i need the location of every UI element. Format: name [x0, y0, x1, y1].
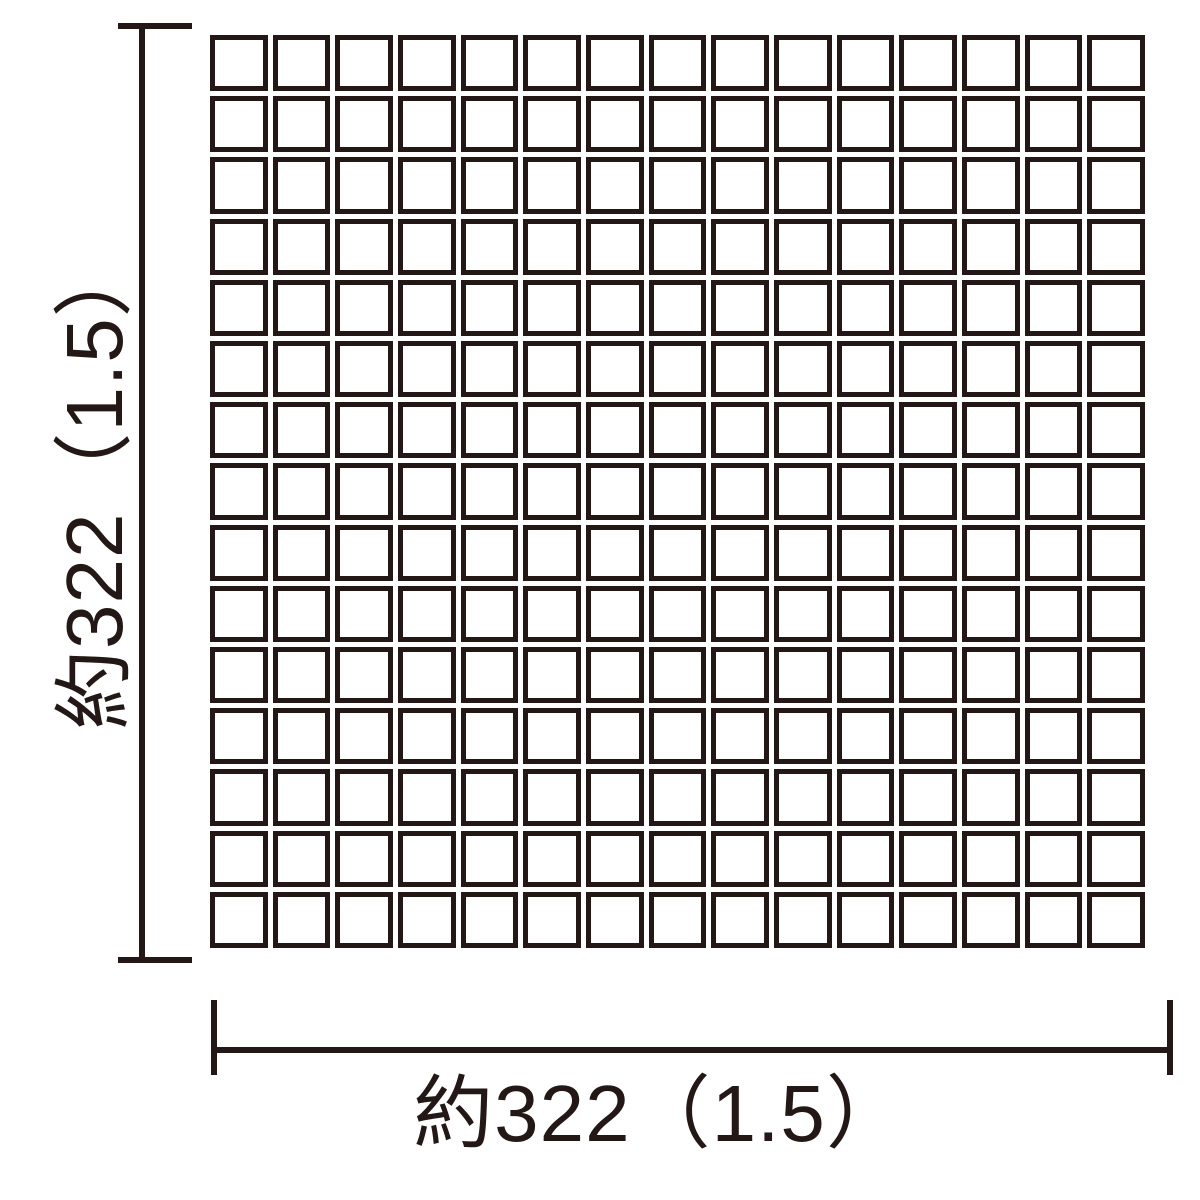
mosaic-tile [273, 708, 331, 764]
mosaic-tile [837, 35, 895, 91]
mosaic-tile [523, 892, 581, 948]
mosaic-tile [711, 463, 769, 519]
mosaic-tile [335, 402, 393, 458]
mosaic-tile [774, 341, 832, 397]
mosaic-tile [335, 831, 393, 887]
mosaic-tile [523, 341, 581, 397]
mosaic-tile [837, 341, 895, 397]
mosaic-tile [774, 35, 832, 91]
mosaic-tile [1087, 647, 1145, 703]
mosaic-tile [837, 402, 895, 458]
mosaic-tile [649, 525, 707, 581]
mosaic-tile [398, 463, 456, 519]
mosaic-tile [962, 708, 1020, 764]
mosaic-tile [461, 892, 519, 948]
mosaic-tile [711, 35, 769, 91]
mosaic-tile [210, 219, 268, 275]
mosaic-tile [649, 280, 707, 336]
mosaic-tile [398, 402, 456, 458]
mosaic-tile [899, 341, 957, 397]
mosaic-tile [398, 831, 456, 887]
mosaic-tile [586, 35, 644, 91]
mosaic-tile [1025, 341, 1083, 397]
mosaic-tile [649, 341, 707, 397]
mosaic-tile [210, 708, 268, 764]
mosaic-tile [962, 402, 1020, 458]
mosaic-tile [711, 892, 769, 948]
mosaic-tile [523, 769, 581, 825]
mosaic-tile [1025, 157, 1083, 213]
mosaic-tile [1087, 586, 1145, 642]
mosaic-tile [335, 525, 393, 581]
mosaic-tile [461, 525, 519, 581]
mosaic-tile [774, 463, 832, 519]
mosaic-tile [461, 463, 519, 519]
mosaic-tile [210, 647, 268, 703]
mosaic-tile [649, 831, 707, 887]
mosaic-tile [899, 96, 957, 152]
mosaic-tile [461, 280, 519, 336]
mosaic-tile [774, 647, 832, 703]
mosaic-tile [649, 586, 707, 642]
mosaic-tile [1025, 708, 1083, 764]
mosaic-tile [398, 341, 456, 397]
mosaic-tile [210, 586, 268, 642]
mosaic-tile [523, 96, 581, 152]
mosaic-tile [1087, 463, 1145, 519]
mosaic-tile [210, 463, 268, 519]
mosaic-tile [335, 280, 393, 336]
mosaic-tile [1087, 96, 1145, 152]
mosaic-tile [586, 280, 644, 336]
mosaic-tile [335, 647, 393, 703]
mosaic-tile [1087, 35, 1145, 91]
mosaic-tile [335, 708, 393, 764]
mosaic-tile [461, 341, 519, 397]
mosaic-tile [774, 525, 832, 581]
mosaic-tile [398, 35, 456, 91]
mosaic-tile [273, 586, 331, 642]
mosaic-tile [335, 96, 393, 152]
mosaic-tile [586, 647, 644, 703]
mosaic-tile [210, 35, 268, 91]
mosaic-tile [1025, 586, 1083, 642]
mosaic-tile [586, 586, 644, 642]
mosaic-tile [962, 463, 1020, 519]
mosaic-tile [586, 892, 644, 948]
mosaic-tile [398, 280, 456, 336]
mosaic-tile [398, 586, 456, 642]
mosaic-tile [649, 157, 707, 213]
mosaic-tile [774, 96, 832, 152]
mosaic-tile [586, 341, 644, 397]
mosaic-tile [962, 892, 1020, 948]
mosaic-tile [1025, 831, 1083, 887]
mosaic-tile [586, 525, 644, 581]
mosaic-tile [461, 96, 519, 152]
mosaic-tile [899, 769, 957, 825]
mosaic-tile [774, 280, 832, 336]
mosaic-tile [962, 35, 1020, 91]
mosaic-tile [461, 708, 519, 764]
mosaic-tile [210, 157, 268, 213]
mosaic-tile [899, 586, 957, 642]
mosaic-tile [586, 708, 644, 764]
mosaic-tile [649, 708, 707, 764]
mosaic-tile [523, 219, 581, 275]
mosaic-tile [273, 525, 331, 581]
mosaic-tile [774, 831, 832, 887]
mosaic-tile [899, 647, 957, 703]
mosaic-tile [1087, 831, 1145, 887]
mosaic-tile [523, 647, 581, 703]
mosaic-tile [523, 35, 581, 91]
mosaic-tile [649, 96, 707, 152]
mosaic-tile [649, 463, 707, 519]
mosaic-tile [335, 341, 393, 397]
width-dimension-line [214, 1047, 1170, 1053]
height-dimension-bottom-cap [118, 957, 192, 963]
mosaic-tile [461, 586, 519, 642]
mosaic-tile [899, 708, 957, 764]
mosaic-tile [273, 96, 331, 152]
mosaic-tile [774, 402, 832, 458]
mosaic-tile [1025, 892, 1083, 948]
mosaic-tile [1025, 96, 1083, 152]
mosaic-tile [899, 892, 957, 948]
mosaic-tile [398, 708, 456, 764]
mosaic-tile [1025, 402, 1083, 458]
mosaic-tile [398, 647, 456, 703]
mosaic-tile [273, 341, 331, 397]
mosaic-tile [837, 219, 895, 275]
mosaic-tile [1025, 35, 1083, 91]
mosaic-tile [1025, 280, 1083, 336]
mosaic-tile [1087, 892, 1145, 948]
mosaic-tile [273, 35, 331, 91]
mosaic-tile [210, 96, 268, 152]
mosaic-tile [711, 831, 769, 887]
mosaic-tile [586, 219, 644, 275]
mosaic-tile [523, 463, 581, 519]
mosaic-tile [1087, 525, 1145, 581]
height-dimension-label: 約322（1.5） [49, 310, 141, 730]
mosaic-tile [273, 769, 331, 825]
mosaic-tile [837, 892, 895, 948]
mosaic-tile [398, 769, 456, 825]
mosaic-tile [461, 647, 519, 703]
mosaic-tile [837, 525, 895, 581]
mosaic-tile [586, 463, 644, 519]
mosaic-tile [962, 525, 1020, 581]
mosaic-tile [711, 219, 769, 275]
mosaic-tile [837, 831, 895, 887]
mosaic-tile [586, 831, 644, 887]
mosaic-tile [899, 35, 957, 91]
mosaic-tile [335, 892, 393, 948]
width-dimension-left-tick [211, 1000, 217, 1075]
mosaic-tile [774, 892, 832, 948]
mosaic-tile [962, 586, 1020, 642]
mosaic-tile [273, 219, 331, 275]
mosaic-tile [837, 708, 895, 764]
mosaic-tile [649, 769, 707, 825]
mosaic-tile [899, 402, 957, 458]
mosaic-tile [335, 157, 393, 213]
mosaic-tile [899, 219, 957, 275]
mosaic-tile [335, 463, 393, 519]
mosaic-tile [837, 647, 895, 703]
mosaic-tile [523, 525, 581, 581]
mosaic-tile [899, 280, 957, 336]
mosaic-tile [837, 96, 895, 152]
mosaic-tile [711, 708, 769, 764]
mosaic-tile [1087, 402, 1145, 458]
mosaic-tile [335, 35, 393, 91]
mosaic-tile [335, 219, 393, 275]
mosaic-tile [398, 219, 456, 275]
mosaic-tile [1025, 463, 1083, 519]
height-dimension-top-cap [118, 23, 192, 29]
mosaic-tile [210, 769, 268, 825]
mosaic-tile [899, 831, 957, 887]
mosaic-tile [962, 219, 1020, 275]
mosaic-tile [899, 525, 957, 581]
mosaic-tile [586, 157, 644, 213]
mosaic-tile [273, 647, 331, 703]
mosaic-tile [774, 586, 832, 642]
mosaic-tile [273, 463, 331, 519]
mosaic-tile [649, 219, 707, 275]
mosaic-tile [586, 96, 644, 152]
mosaic-tile [210, 280, 268, 336]
mosaic-tile [398, 525, 456, 581]
mosaic-tile [1087, 341, 1145, 397]
mosaic-tile [711, 647, 769, 703]
mosaic-tile [711, 157, 769, 213]
mosaic-tile [649, 892, 707, 948]
mosaic-tile [273, 280, 331, 336]
mosaic-tile [711, 341, 769, 397]
mosaic-tile [461, 831, 519, 887]
mosaic-tile [523, 280, 581, 336]
mosaic-tile [210, 525, 268, 581]
mosaic-tile [774, 708, 832, 764]
mosaic-tile [1087, 219, 1145, 275]
mosaic-tile [649, 35, 707, 91]
mosaic-tile [837, 463, 895, 519]
mosaic-tile [210, 341, 268, 397]
mosaic-tile [210, 892, 268, 948]
mosaic-tile [586, 769, 644, 825]
mosaic-tile [1087, 769, 1145, 825]
mosaic-tile [335, 769, 393, 825]
mosaic-tile [461, 769, 519, 825]
mosaic-tile [711, 586, 769, 642]
mosaic-tile [962, 647, 1020, 703]
mosaic-tile [523, 402, 581, 458]
mosaic-tile [899, 463, 957, 519]
mosaic-tile [711, 525, 769, 581]
mosaic-tile [1025, 769, 1083, 825]
mosaic-tile [837, 280, 895, 336]
mosaic-tile [837, 586, 895, 642]
mosaic-tile [523, 157, 581, 213]
mosaic-tile [1025, 647, 1083, 703]
mosaic-tile [461, 157, 519, 213]
mosaic-tile [899, 157, 957, 213]
mosaic-tile [398, 892, 456, 948]
mosaic-tile [837, 769, 895, 825]
mosaic-tile [273, 157, 331, 213]
mosaic-tile [523, 831, 581, 887]
mosaic-tile [523, 708, 581, 764]
mosaic-tile [335, 586, 393, 642]
mosaic-tile [962, 341, 1020, 397]
mosaic-tile [837, 157, 895, 213]
mosaic-tile [210, 402, 268, 458]
mosaic-tile [461, 402, 519, 458]
mosaic-tile [1087, 280, 1145, 336]
mosaic-grid [210, 35, 1145, 948]
mosaic-tile [1087, 708, 1145, 764]
mosaic-tile [711, 769, 769, 825]
diagram-canvas: 約322（1.5） 約322（1.5） [0, 0, 1200, 1200]
mosaic-tile [711, 280, 769, 336]
mosaic-tile [273, 402, 331, 458]
mosaic-tile [962, 157, 1020, 213]
mosaic-tile [273, 892, 331, 948]
mosaic-tile [398, 157, 456, 213]
mosaic-tile [586, 402, 644, 458]
mosaic-tile [1087, 157, 1145, 213]
mosaic-tile [649, 647, 707, 703]
mosaic-tile [210, 831, 268, 887]
mosaic-tile [962, 280, 1020, 336]
mosaic-tile [398, 96, 456, 152]
mosaic-tile [1025, 525, 1083, 581]
mosaic-tile [774, 157, 832, 213]
mosaic-tile [461, 219, 519, 275]
mosaic-tile [1025, 219, 1083, 275]
mosaic-tile [649, 402, 707, 458]
mosaic-tile [711, 402, 769, 458]
mosaic-tile [523, 586, 581, 642]
mosaic-tile [962, 96, 1020, 152]
mosaic-tile [962, 769, 1020, 825]
mosaic-tile [461, 35, 519, 91]
mosaic-tile [962, 831, 1020, 887]
mosaic-tile [711, 96, 769, 152]
mosaic-tile [774, 219, 832, 275]
width-dimension-label: 約322（1.5） [350, 1068, 970, 1160]
width-dimension-right-tick [1167, 1000, 1173, 1075]
mosaic-tile [273, 831, 331, 887]
mosaic-tile [774, 769, 832, 825]
